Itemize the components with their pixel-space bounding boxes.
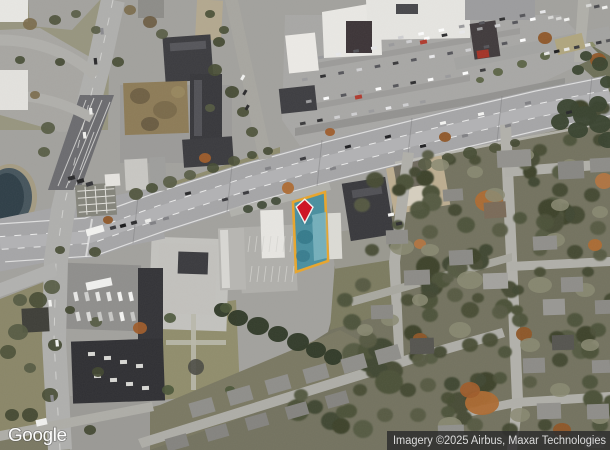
svg-text:Imagery ©2025 Airbus, Maxar Te: Imagery ©2025 Airbus, Maxar Technologies <box>393 435 606 447</box>
svg-text:Google: Google <box>8 424 67 445</box>
